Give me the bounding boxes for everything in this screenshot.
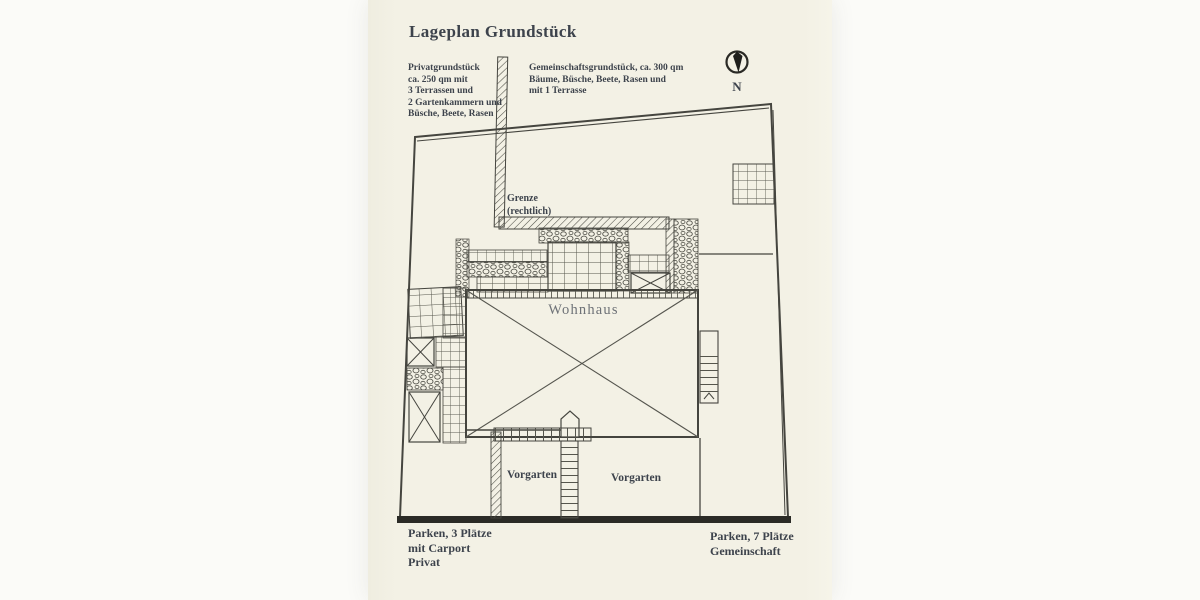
legend-line: Bäume, Büsche, Beete, Rasen und (529, 75, 689, 87)
scanned-site-plan: Lageplan Grundstück Privatgrundstück ca.… (0, 0, 1200, 600)
legend-common-plot: Gemeinschaftsgrundstück, ca. 300 qm Bäum… (529, 63, 689, 98)
stairs-treads (700, 355, 718, 397)
legend-line: Privatgrundstück (408, 63, 508, 75)
north-terrace-cluster (456, 219, 698, 297)
house-label: Wohnhaus (536, 302, 631, 319)
small-terrace-grid-east (628, 255, 669, 272)
garden-chamber-1 (407, 338, 434, 366)
grenze-strip-horizontal (499, 217, 669, 229)
parking-line: Privat (408, 555, 492, 570)
main-terrace-grid (548, 242, 616, 291)
legend-line: mit 1 Terrasse (529, 86, 689, 98)
boundary-label: Grenze (rechtlich) (507, 193, 551, 218)
legend-private-plot: Privatgrundstück ca. 250 qm mit 3 Terras… (408, 63, 508, 121)
page-title: Lageplan Grundstück (409, 22, 577, 42)
grenze-strip-south (491, 432, 501, 518)
entrance-walkway-steps (561, 441, 578, 518)
west-garden-cluster (407, 287, 466, 443)
street-edge-thick-line (397, 516, 791, 523)
paving-strip-west (467, 250, 547, 262)
walkway-west-lower (443, 367, 466, 443)
legend-line: ca. 250 qm mit (408, 75, 508, 87)
parking-private-label: Parken, 3 Plätze mit Carport Privat (408, 526, 492, 570)
shrub-strip (407, 368, 443, 390)
parking-line: Parken, 3 Plätze (408, 526, 492, 541)
legend-line: Büsche, Beete, Rasen (408, 109, 508, 121)
boundary-label-line: Grenze (507, 193, 551, 206)
walkway-west-upper (443, 288, 466, 338)
front-garden-right-label: Vorgarten (606, 472, 666, 484)
garden-chamber-2 (409, 392, 440, 442)
legend-line: 2 Gartenkammern und (408, 98, 508, 110)
north-compass-icon (727, 52, 748, 73)
paving-square (436, 337, 466, 367)
shrub-band (539, 228, 628, 243)
parking-line: Parken, 7 Plätze (710, 529, 794, 544)
house-top-wall-hatching (467, 291, 697, 298)
legend-line: Gemeinschaftsgrundstück, ca. 300 qm (529, 63, 689, 75)
shrub-column (616, 242, 629, 291)
parking-line: mit Carport (408, 541, 492, 556)
common-terrace-grid (733, 164, 774, 204)
compass-needle (733, 52, 743, 73)
front-garden-left-label: Vorgarten (502, 469, 562, 481)
east-exterior-stairs (700, 331, 718, 403)
parking-common-label: Parken, 7 Plätze Gemeinschaft (710, 529, 794, 558)
north-label: N (727, 79, 747, 95)
boundary-label-line: (rechtlich) (507, 206, 551, 219)
terrace-edge-strip (494, 428, 591, 441)
hatch-edge-strip (666, 219, 674, 293)
shrub-strip-west (467, 262, 547, 277)
parking-line: Gemeinschaft (710, 544, 794, 559)
boundary-inner-right-line (773, 110, 785, 515)
legend-line: 3 Terrassen und (408, 86, 508, 98)
shrub-area-east (674, 219, 698, 293)
